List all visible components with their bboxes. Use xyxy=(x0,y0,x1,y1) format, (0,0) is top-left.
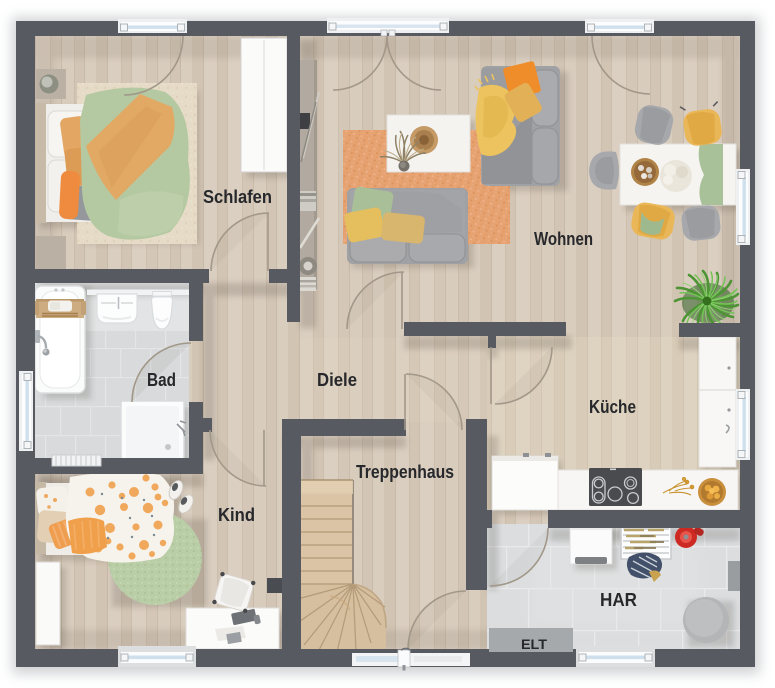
svg-text:Küche: Küche xyxy=(589,396,636,417)
svg-text:HAR: HAR xyxy=(600,589,637,610)
svg-text:Kind: Kind xyxy=(218,504,255,525)
svg-text:Bad: Bad xyxy=(147,369,176,390)
svg-text:Wohnen: Wohnen xyxy=(534,228,593,249)
svg-text:Diele: Diele xyxy=(317,369,357,390)
svg-text:Treppenhaus: Treppenhaus xyxy=(356,461,454,482)
svg-text:Schlafen: Schlafen xyxy=(203,186,272,207)
svg-text:ELT: ELT xyxy=(521,637,548,652)
